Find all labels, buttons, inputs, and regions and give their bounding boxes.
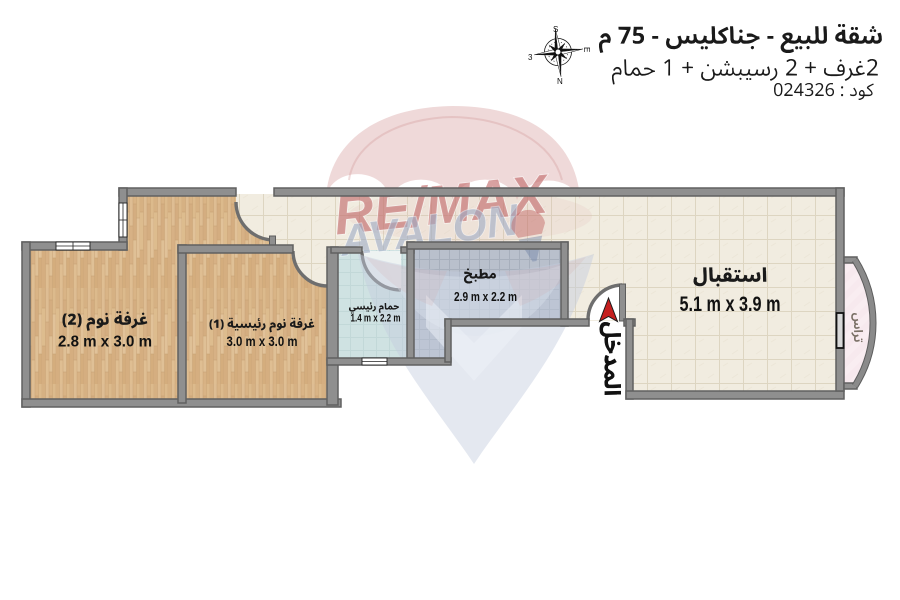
svg-text:3: 3 [528,53,533,62]
svg-text:N: N [557,77,563,86]
svg-text:E: E [582,47,591,52]
svg-text:3.0 m x 3.0 m: 3.0 m x 3.0 m [227,334,298,349]
svg-text:2.8 m x 3.0 m: 2.8 m x 3.0 m [58,334,152,351]
svg-text:2.9 m x 2.2 m: 2.9 m x 2.2 m [454,290,517,304]
svg-text:S: S [553,25,558,34]
svg-text:5.1 m x 3.9 m: 5.1 m x 3.9 m [680,292,781,316]
svg-text:1.4 m x 2.2 m: 1.4 m x 2.2 m [351,313,401,325]
